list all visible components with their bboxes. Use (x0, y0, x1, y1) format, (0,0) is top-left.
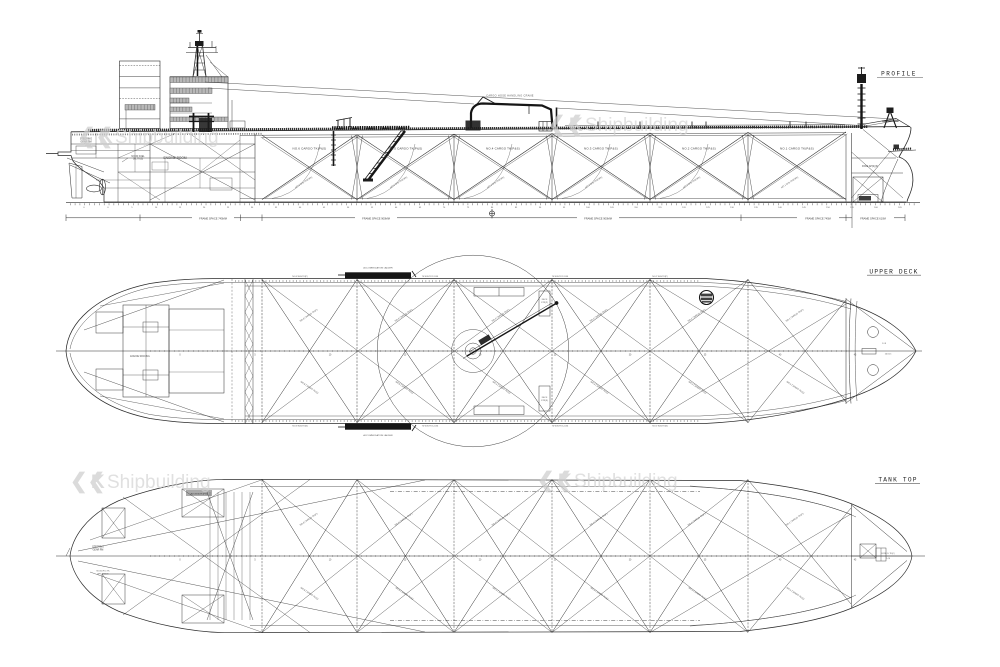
svg-text:AUX.BOILER (P/S): AUX.BOILER (P/S) (190, 493, 207, 496)
svg-text:K: K (99, 127, 113, 148)
svg-text:TANK TOP: TANK TOP (878, 477, 917, 484)
svg-text:1 0 8: 1 0 8 (882, 343, 886, 345)
svg-text:Shipbuilding: Shipbuilding (107, 472, 211, 493)
svg-text:NO.4 CARGO TK(P&S): NO.4 CARGO TK(P&S) (486, 147, 520, 151)
svg-text:NO.6 W.B.TK(P): NO.6 W.B.TK(P) (292, 276, 308, 278)
svg-text:NO.6 W.B.TK(S): NO.6 W.B.TK(S) (292, 426, 308, 428)
svg-text:AFT SPACE: AFT SPACE (97, 573, 109, 576)
svg-text:NO.1 W.B.TK(S): NO.1 W.B.TK(S) (652, 426, 668, 428)
svg-text:STEERING: STEERING (92, 547, 104, 549)
svg-text:NO.6 CARGO TK(P&S): NO.6 CARGO TK(P&S) (293, 147, 327, 151)
svg-text:NO.60 F.O.TK: NO.60 F.O.TK (96, 571, 110, 573)
svg-text:K: K (558, 471, 572, 492)
svg-text:K: K (91, 472, 105, 493)
svg-text:STR(P): STR(P) (541, 302, 548, 304)
svg-text:DECK: DECK (542, 397, 548, 399)
svg-text:UPPER DECK: UPPER DECK (869, 269, 918, 276)
svg-text:NO.3 CARGO TK(P&S): NO.3 CARGO TK(P&S) (584, 147, 618, 151)
svg-text:FRAME SPACE 900MM: FRAME SPACE 900MM (584, 216, 612, 220)
svg-text:FRAME SPACE 745M: FRAME SPACE 745M (805, 216, 831, 220)
svg-text:NO.60 FUEL: NO.60 FUEL (131, 156, 145, 158)
svg-text:NO.1 W.B.TK(P): NO.1 W.B.TK(P) (652, 276, 668, 278)
svg-text:FORE AP(S)(S): FORE AP(S)(S) (862, 165, 878, 168)
svg-text:74 W.B.TK 12-3/4: 74 W.B.TK 12-3/4 (422, 426, 439, 428)
svg-text:FRAME SPACE 900MM: FRAME SPACE 900MM (362, 216, 390, 220)
svg-text:Shipbuilding: Shipbuilding (115, 127, 219, 148)
svg-text:ACCOMMODATION LADDER: ACCOMMODATION LADDER (363, 434, 393, 437)
svg-text:OIL TK(S): OIL TK(S) (133, 159, 143, 161)
svg-text:GEAR RM: GEAR RM (93, 549, 104, 552)
svg-text:PROFILE: PROFILE (881, 71, 917, 78)
svg-text:ENGINE ROOM: ENGINE ROOM (163, 156, 186, 160)
svg-text:K: K (569, 115, 583, 136)
svg-text:Shipbuilding: Shipbuilding (585, 115, 689, 136)
svg-text:110 115: 110 115 (885, 354, 892, 356)
svg-text:74 W.B.TK 12-3/4: 74 W.B.TK 12-3/4 (422, 276, 439, 278)
svg-text:2 4 6: 2 4 6 (886, 558, 890, 560)
svg-text:CARGO HOSE HANDLING CRANE: CARGO HOSE HANDLING CRANE (486, 94, 534, 97)
svg-text:Shipbuilding: Shipbuilding (574, 471, 678, 492)
svg-text:ACCOMMODATION LADDER: ACCOMMODATION LADDER (363, 267, 393, 270)
svg-text:FRAME SPACE 745MM: FRAME SPACE 745MM (199, 216, 227, 220)
svg-text:FORE S. TK(C): FORE S. TK(C) (881, 553, 894, 555)
svg-text:DECK: DECK (542, 299, 548, 301)
svg-text:FRAME SPACE 610M: FRAME SPACE 610M (860, 216, 886, 220)
svg-text:NO.1 CARGO TK(P&S): NO.1 CARGO TK(P&S) (780, 147, 814, 151)
svg-text:STR(S): STR(S) (541, 400, 548, 402)
svg-text:NO.2 CARGO TK(P&S): NO.2 CARGO TK(P&S) (682, 147, 716, 151)
svg-text:ENGINE SPACING: ENGINE SPACING (130, 355, 150, 358)
svg-text:NO.5 CARGO TK(P&S): NO.5 CARGO TK(P&S) (389, 147, 423, 151)
svg-text:74 W.B.TK 12-3/4: 74 W.B.TK 12-3/4 (552, 276, 569, 278)
svg-text:74 W.B.TK 12-3/4: 74 W.B.TK 12-3/4 (552, 426, 569, 428)
